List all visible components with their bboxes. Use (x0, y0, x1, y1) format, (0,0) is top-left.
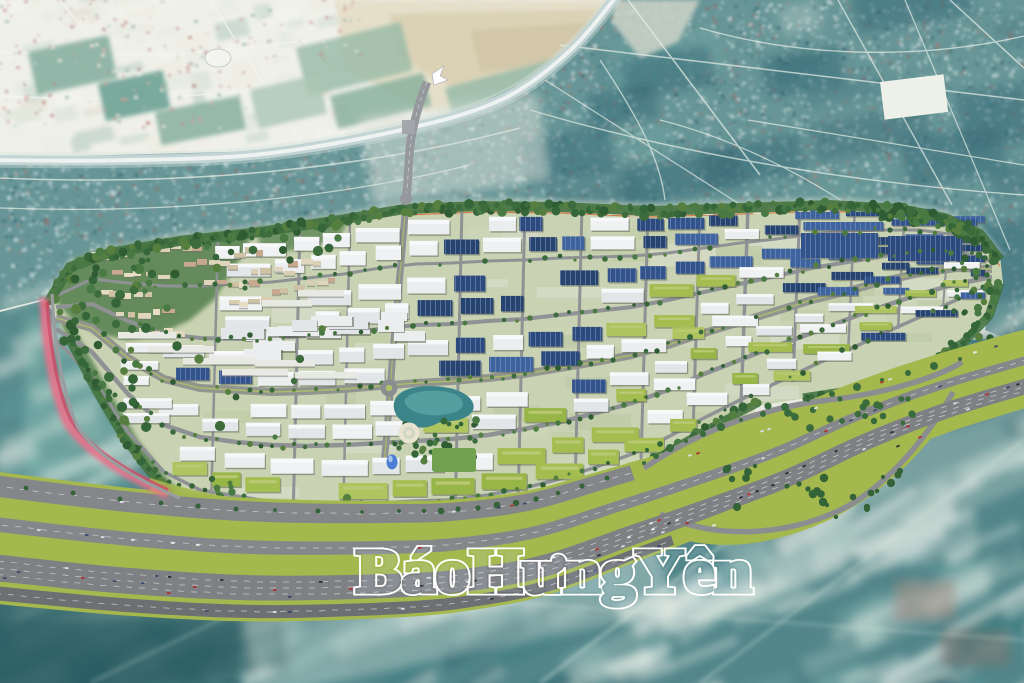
svg-text:BáoHưngYên: BáoHưngYên (356, 538, 752, 606)
